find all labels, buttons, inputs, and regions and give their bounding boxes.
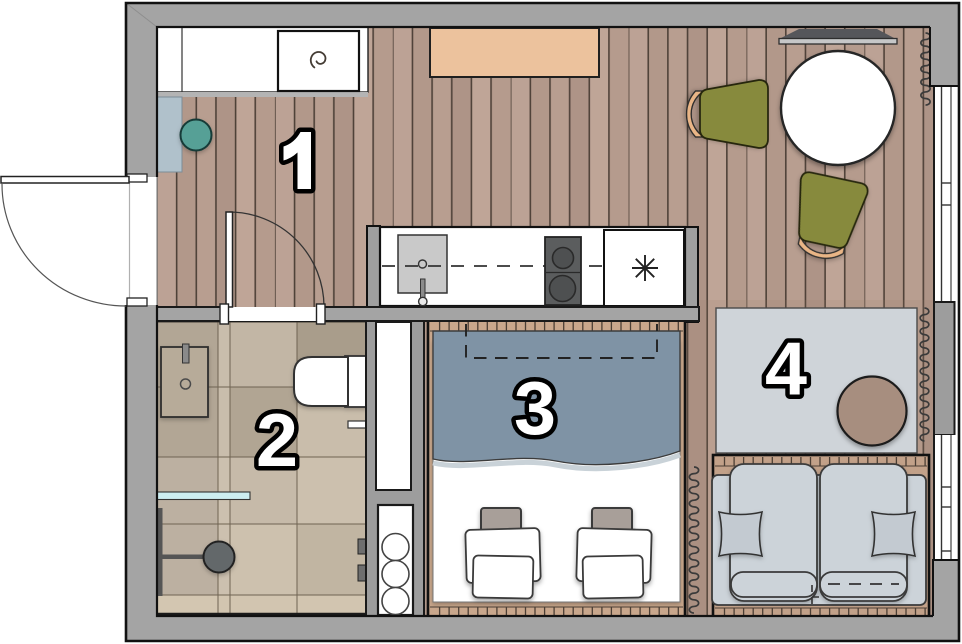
svg-text:4: 4 xyxy=(765,327,807,411)
svg-text:3: 3 xyxy=(514,366,556,450)
svg-text:2: 2 xyxy=(256,398,298,482)
